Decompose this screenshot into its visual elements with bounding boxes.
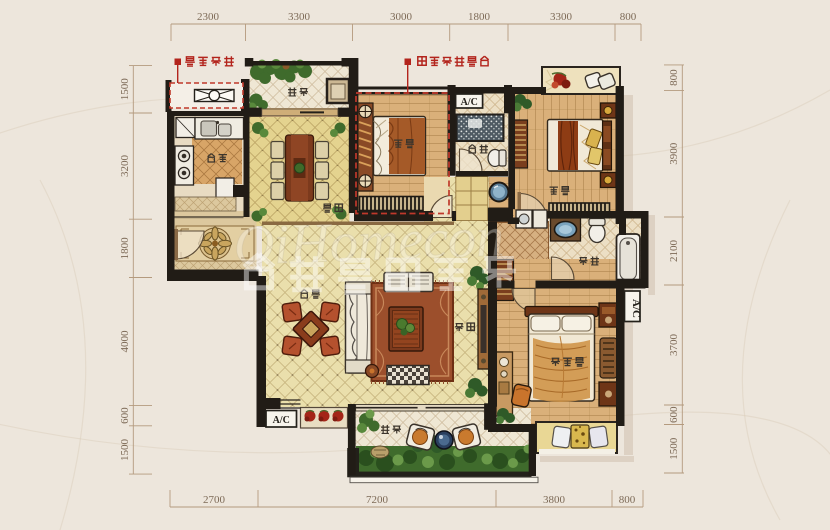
svg-text:600: 600 bbox=[119, 407, 131, 424]
svg-text:A/C: A/C bbox=[273, 415, 290, 426]
svg-text:1500: 1500 bbox=[119, 439, 131, 462]
svg-text:3300: 3300 bbox=[288, 11, 311, 23]
svg-text:2100: 2100 bbox=[668, 240, 680, 263]
svg-text:600: 600 bbox=[668, 406, 680, 423]
svg-text:3800: 3800 bbox=[543, 494, 566, 506]
svg-text:1500: 1500 bbox=[668, 437, 680, 460]
svg-text:2700: 2700 bbox=[203, 494, 226, 506]
svg-text:2300: 2300 bbox=[197, 11, 220, 23]
svg-text:3700: 3700 bbox=[668, 334, 680, 357]
svg-text:A/C: A/C bbox=[461, 97, 478, 108]
svg-text:1800: 1800 bbox=[119, 237, 131, 260]
svg-text:800: 800 bbox=[668, 69, 680, 86]
svg-text:3000: 3000 bbox=[390, 11, 413, 23]
svg-text:1800: 1800 bbox=[468, 11, 491, 23]
svg-text:800: 800 bbox=[619, 494, 636, 506]
svg-text:A/C: A/C bbox=[630, 299, 642, 318]
svg-text:1500: 1500 bbox=[119, 78, 131, 101]
svg-text:800: 800 bbox=[620, 11, 637, 23]
svg-text:3200: 3200 bbox=[119, 155, 131, 178]
svg-text:3300: 3300 bbox=[550, 11, 573, 23]
svg-text:4000: 4000 bbox=[119, 330, 131, 353]
svg-text:3900: 3900 bbox=[668, 142, 680, 165]
svg-text:7200: 7200 bbox=[366, 494, 389, 506]
